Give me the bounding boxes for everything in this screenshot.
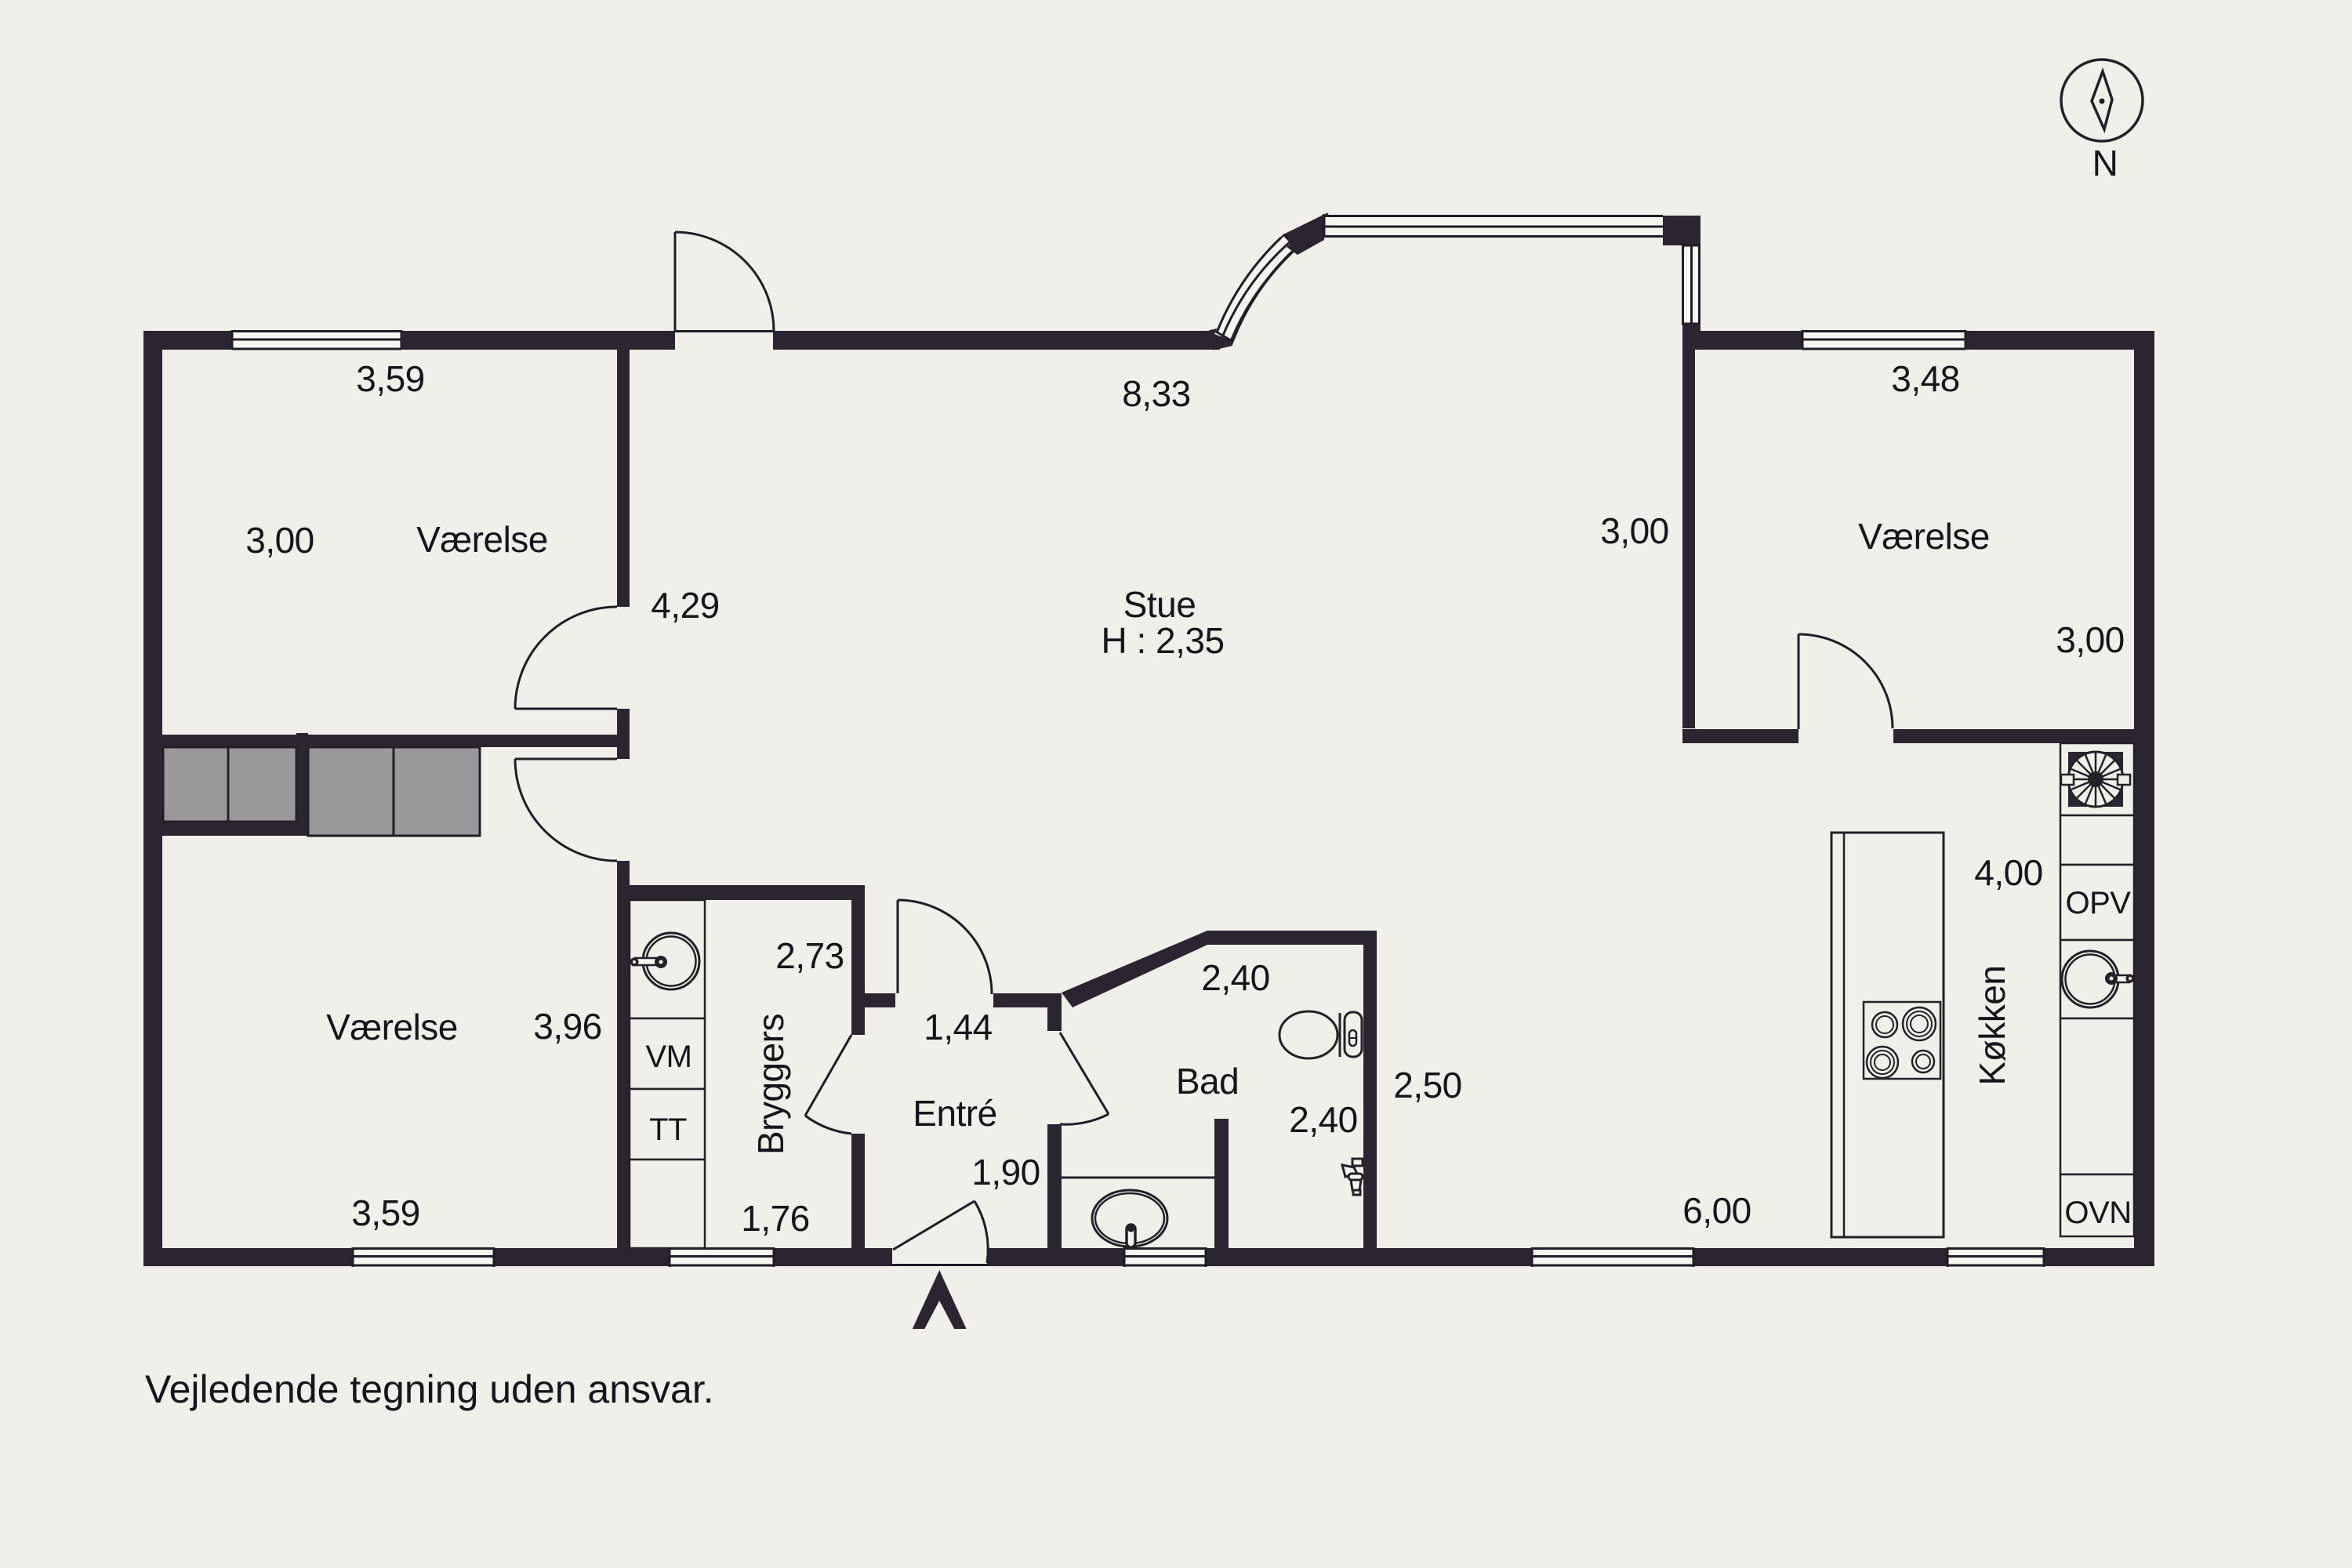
svg-text:OVN: OVN [2064, 1196, 2131, 1230]
svg-text:3,48: 3,48 [1891, 358, 1960, 399]
svg-text:3,00: 3,00 [245, 520, 314, 561]
svg-text:2,73: 2,73 [775, 935, 844, 976]
svg-text:N: N [2092, 143, 2118, 183]
svg-text:Vejledende tegning uden ansvar: Vejledende tegning uden ansvar. [145, 1367, 714, 1411]
svg-text:2,50: 2,50 [1393, 1065, 1462, 1105]
svg-text:3,00: 3,00 [1600, 510, 1669, 551]
svg-text:Bad: Bad [1176, 1061, 1239, 1102]
svg-text:4,29: 4,29 [651, 585, 720, 626]
svg-text:VM: VM [646, 1040, 692, 1074]
svg-text:8,33: 8,33 [1122, 373, 1191, 414]
svg-text:TT: TT [649, 1112, 687, 1147]
svg-text:Entré: Entré [913, 1093, 996, 1134]
svg-text:1,44: 1,44 [924, 1007, 993, 1047]
svg-text:1,76: 1,76 [741, 1198, 810, 1239]
svg-text:2,40: 2,40 [1289, 1099, 1358, 1140]
svg-text:4,00: 4,00 [1974, 852, 2043, 893]
svg-text:Stue: Stue [1123, 584, 1196, 625]
svg-text:H : 2,35: H : 2,35 [1101, 620, 1224, 661]
svg-text:3,59: 3,59 [356, 358, 425, 399]
svg-text:1,90: 1,90 [971, 1152, 1040, 1192]
svg-text:Værelse: Værelse [416, 519, 548, 560]
svg-text:6,00: 6,00 [1682, 1190, 1751, 1231]
svg-text:3,96: 3,96 [533, 1006, 602, 1047]
svg-text:Værelse: Værelse [1858, 516, 1990, 557]
svg-text:2,40: 2,40 [1201, 957, 1270, 998]
svg-text:OPV: OPV [2066, 886, 2132, 920]
svg-text:3,00: 3,00 [2056, 619, 2125, 660]
svg-text:Værelse: Værelse [326, 1007, 458, 1047]
svg-text:3,59: 3,59 [351, 1192, 420, 1233]
svg-text:Bryggers: Bryggers [750, 1014, 791, 1155]
svg-text:Køkken: Køkken [1972, 966, 2013, 1086]
